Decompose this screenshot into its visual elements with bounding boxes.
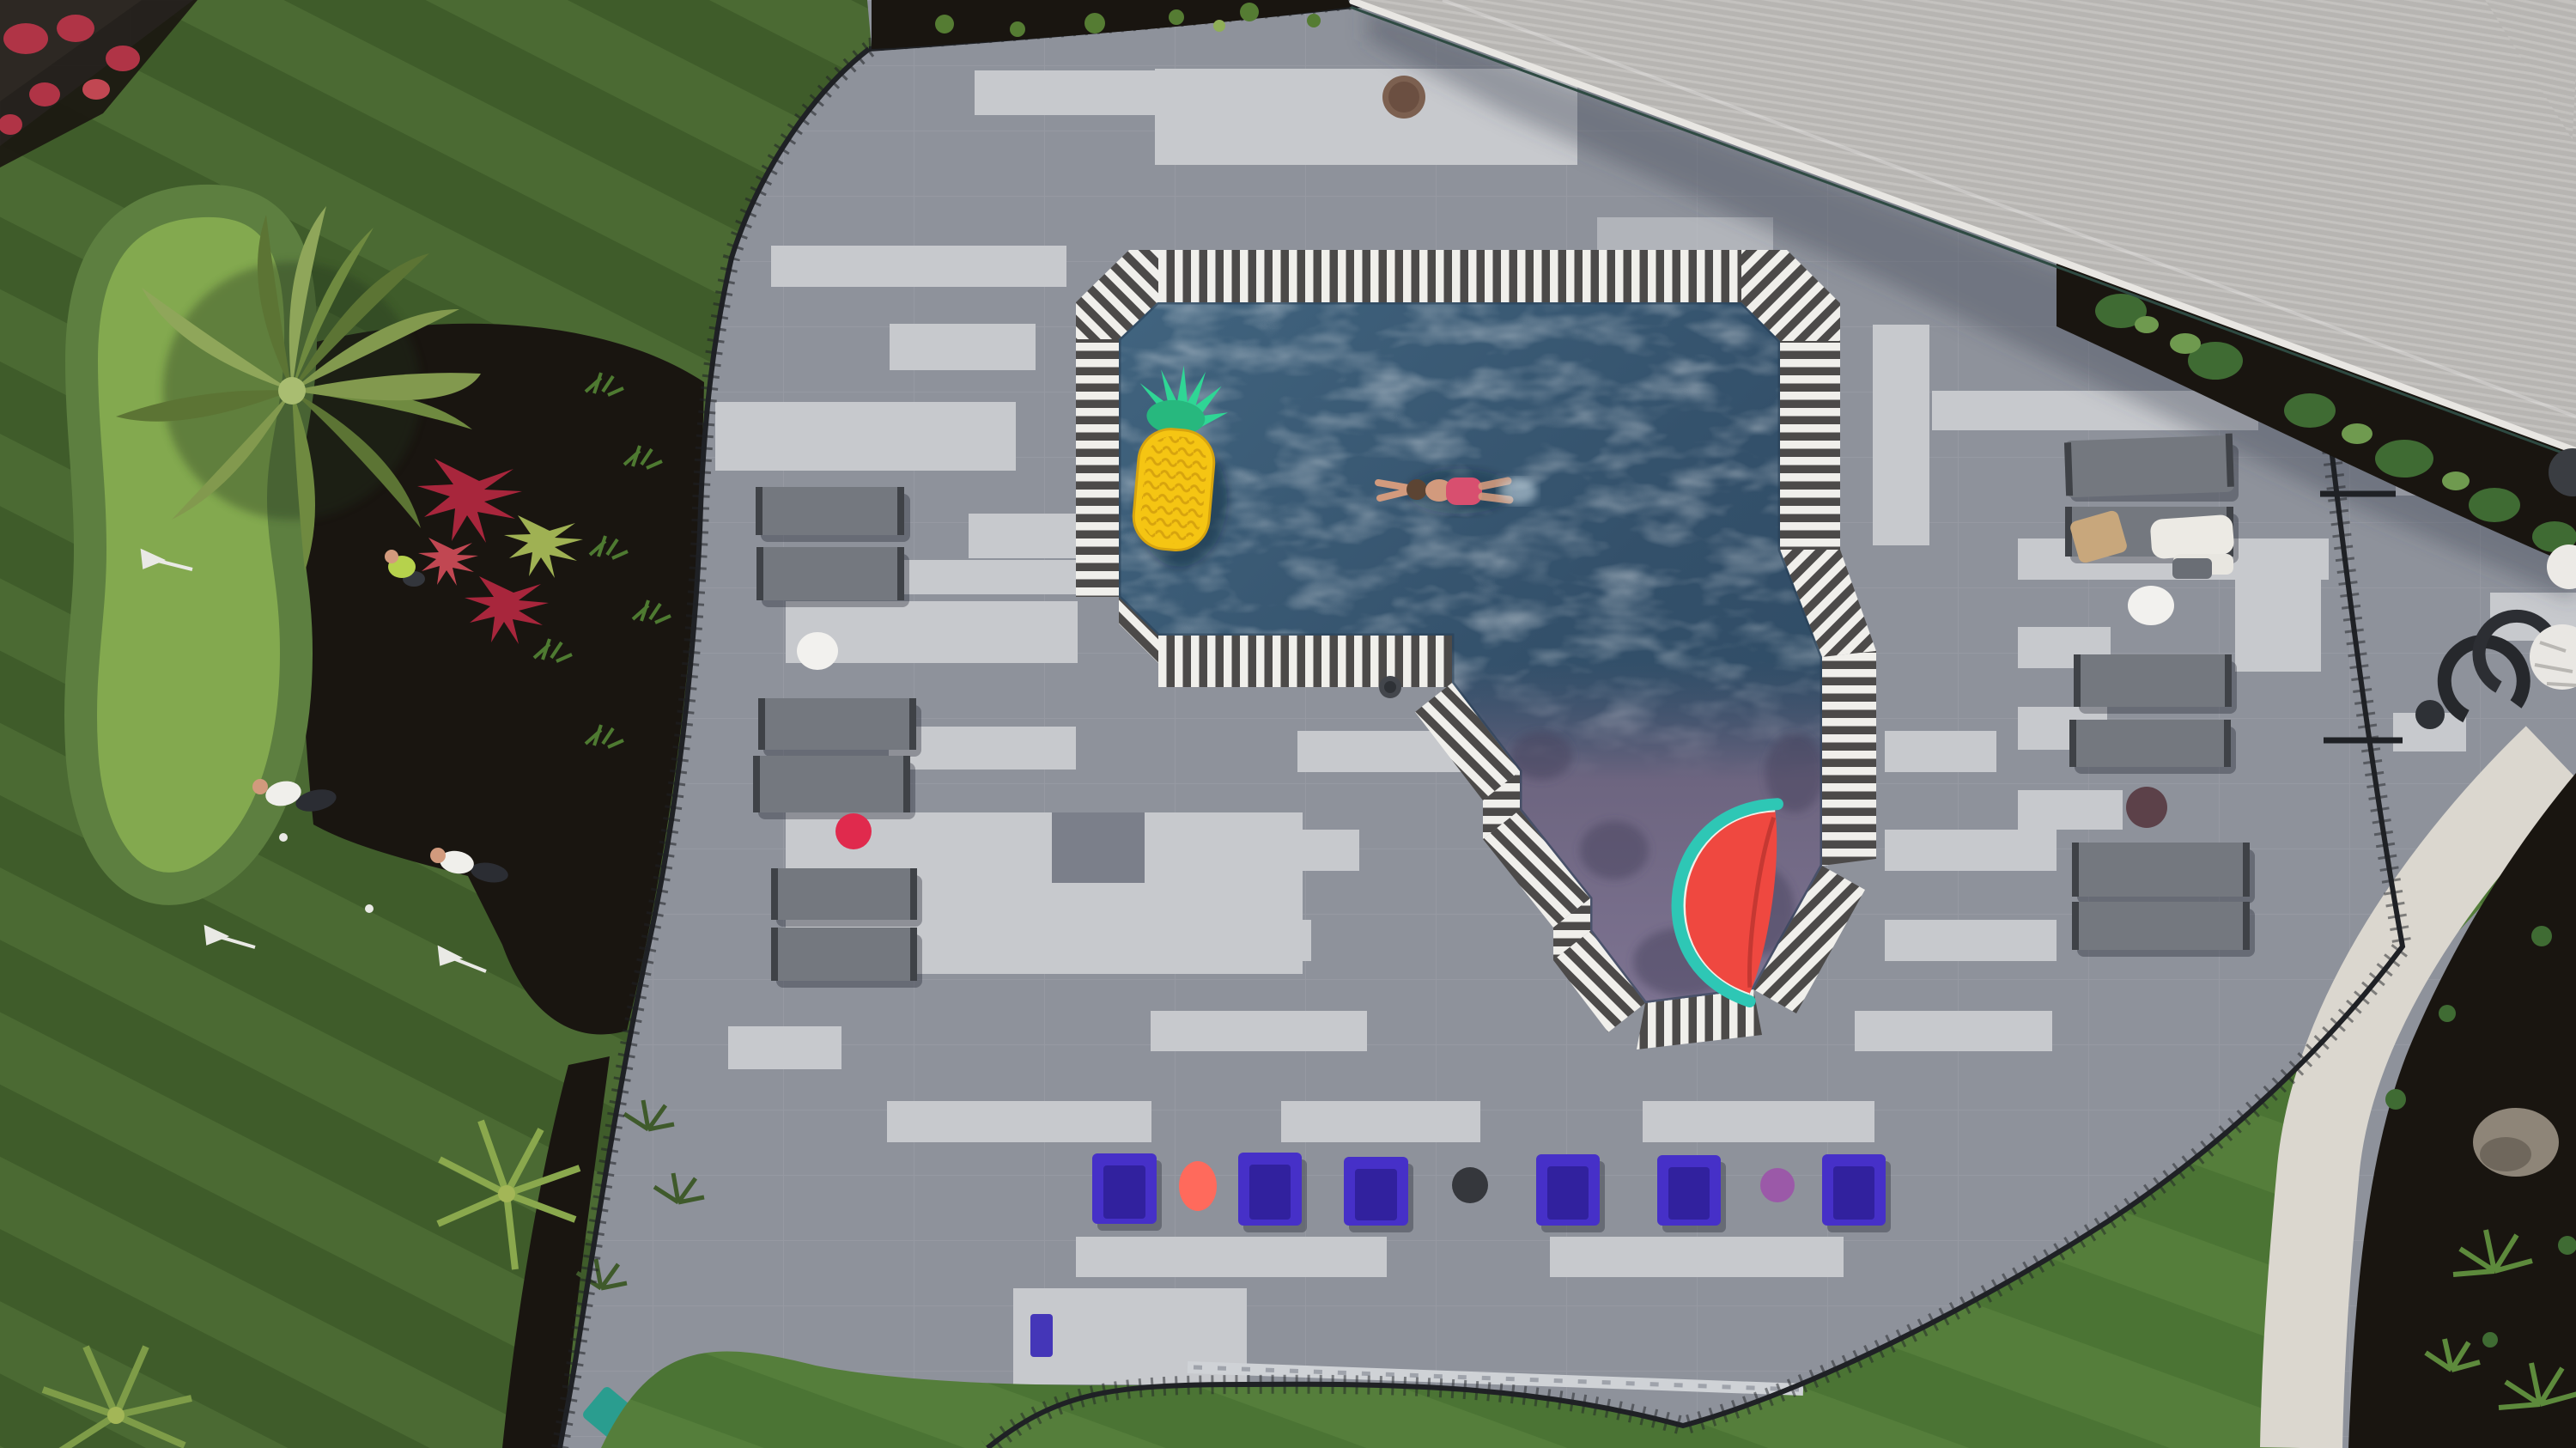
splash [1499,478,1537,504]
towel-gray [2172,558,2212,579]
palm-crown [278,377,306,405]
aerial-pool-photo [0,0,2576,1448]
pool-drain-inner [1384,681,1396,693]
side-table-white [797,632,838,670]
swimmer-head [1406,479,1427,500]
lounger [2074,654,2237,714]
lounger [753,756,915,819]
lounger [2069,720,2236,774]
ottoman-plum [2126,787,2167,828]
cube-chair [1822,1154,1891,1232]
pool-coping-left [1076,339,1119,597]
paving-notch [1052,812,1145,883]
cube-chair [1344,1157,1413,1232]
lounger [2072,902,2255,957]
cube-chair [1092,1153,1162,1231]
side-table-coral [1179,1161,1217,1211]
lounger [771,928,922,988]
lounger [756,487,910,542]
side-table-mauve [1760,1168,1795,1202]
loungers-left [753,487,922,988]
ledge-coping-r2 [1822,651,1876,866]
lounger [771,868,922,927]
side-table-white [2128,586,2174,625]
lounger [758,698,921,757]
cube-chair [1238,1153,1307,1232]
lounger [2064,434,2239,502]
loungers-right [2064,434,2255,957]
pineapple-body-texture [1139,434,1210,545]
pool-coping-top [1158,250,1741,302]
sphere-planter [2415,700,2445,729]
side-table-black [1452,1167,1488,1203]
fire-bowl-inner [1388,82,1419,113]
photo-canvas [0,0,2576,1448]
cube-chair [1536,1154,1605,1232]
pool-coping-bottom [1158,636,1452,687]
lounger [2072,843,2255,903]
boulder-shade [2480,1137,2531,1171]
side-table-red [835,813,872,849]
pool-coping-right [1780,341,1840,550]
lounger [756,547,909,607]
towel-white [2150,514,2235,560]
blue-mat [1030,1314,1053,1357]
cube-chair [1657,1155,1726,1232]
swimmer-suit [1446,478,1482,505]
